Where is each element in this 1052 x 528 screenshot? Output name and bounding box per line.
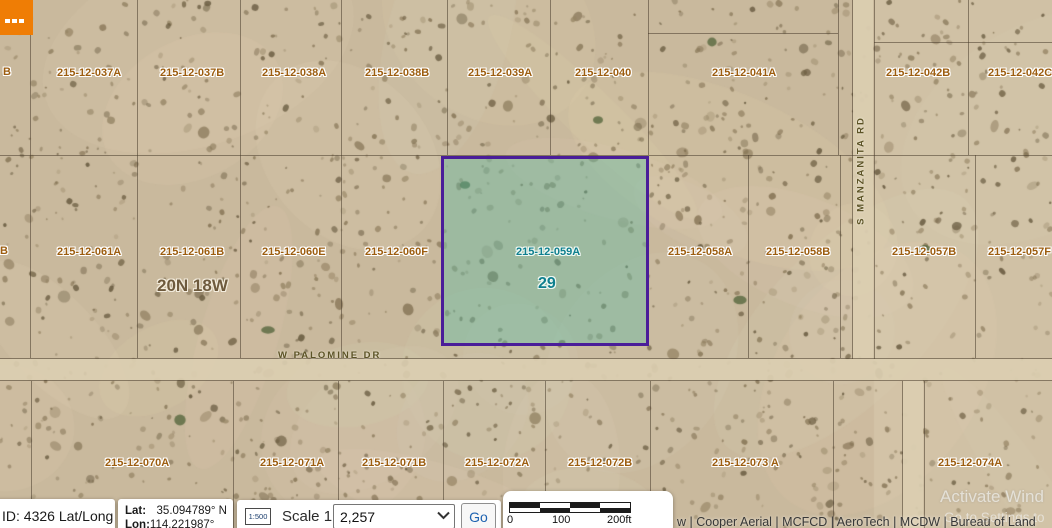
township-range-label: 20N 18W bbox=[157, 276, 228, 296]
parcel-label: 215-12-073 A bbox=[712, 457, 779, 469]
scalebar-bar bbox=[509, 502, 631, 513]
watermark-line1: Activate Wind bbox=[940, 487, 1044, 507]
parcel-label: 215-12-038B bbox=[365, 67, 429, 79]
menu-button[interactable] bbox=[0, 0, 33, 35]
scalebar-tick: 200ft bbox=[607, 514, 631, 526]
parcel-label: 215-12-072A bbox=[465, 457, 529, 469]
scalebar-tick: 0 bbox=[507, 514, 513, 526]
parcel-label: B bbox=[3, 66, 11, 78]
parcel-label: B bbox=[0, 245, 8, 257]
parcel-label: 215-12-074A bbox=[938, 457, 1002, 469]
parcel-label: 215-12-042B bbox=[886, 67, 950, 79]
selected-parcel-lot-number: 29 bbox=[538, 275, 556, 293]
scale-label: Scale 1: bbox=[282, 508, 336, 525]
parcel-label: 215-12-039A bbox=[468, 67, 532, 79]
road-palomine bbox=[0, 359, 1052, 380]
parcel-label: 215-12-061A bbox=[57, 246, 121, 258]
projection-label: ID: 4326 Lat/Long bbox=[2, 508, 113, 524]
parcel-label: 215-12-070A bbox=[105, 457, 169, 469]
parcel-label: 215-12-058B bbox=[766, 246, 830, 258]
parcel-label: 215-12-037B bbox=[160, 67, 224, 79]
parcel-label: 215-12-042C bbox=[988, 67, 1052, 79]
parcel-label: 215-12-061B bbox=[160, 246, 224, 258]
ellipsis-icon bbox=[5, 19, 10, 23]
parcel-label: 215-12-060F bbox=[365, 246, 428, 258]
lat-label: Lat: bbox=[125, 505, 146, 517]
parcel-label: 215-12-057B bbox=[892, 246, 956, 258]
selected-parcel-apn: 215-12-059A bbox=[516, 246, 580, 258]
parcel-label: 215-12-038A bbox=[262, 67, 326, 79]
scale-combobox[interactable] bbox=[333, 504, 455, 528]
lat-value: 35.094789° N bbox=[157, 505, 227, 517]
road-manzanita-south bbox=[903, 380, 923, 528]
cursor-coordinates: Lat: 35.094789° N Lon: 114.221987° W bbox=[118, 499, 233, 528]
parcel-label: 215-12-041A bbox=[712, 67, 776, 79]
ellipsis-icon bbox=[12, 19, 17, 23]
parcel-label: 215-12-057F bbox=[988, 246, 1051, 258]
ellipsis-icon bbox=[19, 19, 24, 23]
road-label-palomine: W PALOMINE DR bbox=[278, 350, 381, 361]
parcel-map-viewer: 215-12-059A 29 B 215-12-037A 215-12-037B… bbox=[0, 0, 1052, 528]
parcel-label: 215-12-071B bbox=[362, 457, 426, 469]
parcel-label: 215-12-040 bbox=[575, 67, 631, 79]
parcel-label: 215-12-072B bbox=[568, 457, 632, 469]
parcel-label: 215-12-071A bbox=[260, 457, 324, 469]
scalebar: 0 100 200ft bbox=[503, 491, 673, 528]
projection-selector[interactable]: ID: 4326 Lat/Long▲ bbox=[0, 499, 115, 528]
selected-parcel-highlight[interactable]: 215-12-059A 29 bbox=[441, 156, 649, 346]
lon-value: 114.221987° W bbox=[150, 519, 227, 528]
map-scale-icon: 1:500 bbox=[245, 508, 271, 525]
scalebar-tick: 100 bbox=[552, 514, 570, 526]
lon-label: Lon: bbox=[125, 519, 150, 528]
parcel-label: 215-12-037A bbox=[57, 67, 121, 79]
scale-control: 1:500 Scale 1: Go bbox=[237, 500, 501, 528]
go-button[interactable]: Go bbox=[461, 503, 496, 528]
parcel-label: 215-12-060E bbox=[262, 246, 326, 258]
road-label-manzanita: S MANZANITA RD bbox=[856, 111, 867, 231]
parcel-label: 215-12-058A bbox=[668, 246, 732, 258]
map-attribution: w | Cooper Aerial | MCFCD | AeroTech | M… bbox=[677, 515, 1036, 528]
